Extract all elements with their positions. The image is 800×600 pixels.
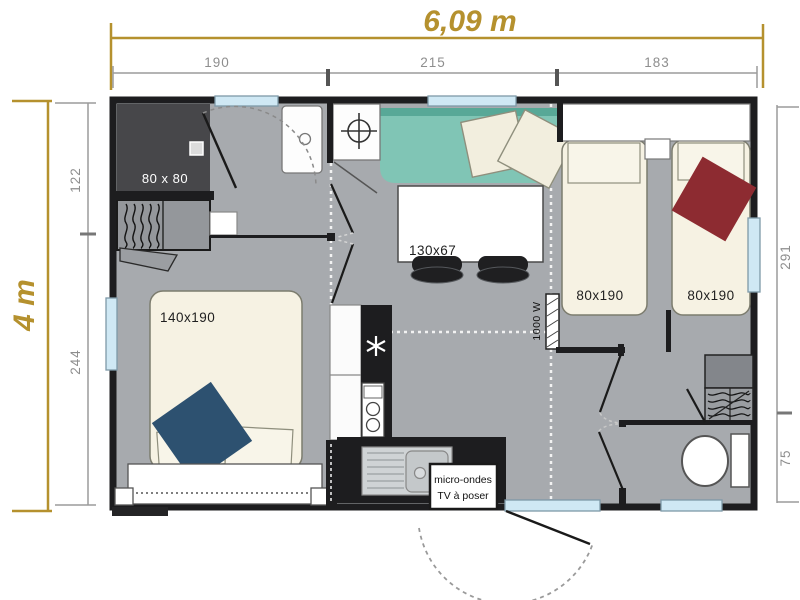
wc xyxy=(682,434,749,487)
bed-headboard xyxy=(128,464,322,504)
wall-twinroom-bottom xyxy=(556,347,625,353)
top-dim-183: 183 xyxy=(644,55,670,70)
total-height-label: 4 m xyxy=(8,279,41,332)
window-right xyxy=(748,218,760,292)
floorplan-page: 6,09 m 190 215 183 4 m 122 244 291 75 xyxy=(0,0,800,600)
shower-drain-icon xyxy=(190,142,203,155)
note-line-2: TV à poser xyxy=(437,490,489,502)
headboard-shelf xyxy=(562,104,750,141)
wall-hinge-post xyxy=(619,420,626,427)
dimension-top: 6,09 m 190 215 183 xyxy=(111,5,763,90)
hatched-wall xyxy=(326,440,337,506)
top-dim-215: 215 xyxy=(420,55,446,70)
sink-drain-icon xyxy=(415,468,426,479)
wall-between-beds xyxy=(666,310,671,352)
burner-icon-2 xyxy=(367,419,380,432)
wall-shower-bottom xyxy=(111,191,214,200)
window-left xyxy=(106,298,117,370)
right-dim-291: 291 xyxy=(778,244,793,270)
microwave-note: micro-ondes TV à poser xyxy=(430,464,497,509)
wall-wc-stub xyxy=(619,488,626,507)
cooktop-cabinet xyxy=(333,104,380,160)
wall-bathroom-right xyxy=(327,100,333,163)
entry-door-glass xyxy=(505,500,600,511)
chair-2-seat xyxy=(477,267,529,283)
pillow-left xyxy=(568,143,640,183)
floorplan-svg: 6,09 m 190 215 183 4 m 122 244 291 75 xyxy=(0,0,800,600)
sofa xyxy=(380,108,576,188)
top-dim-190: 190 xyxy=(204,55,230,70)
burner-icon-1 xyxy=(367,403,380,416)
note-line-1: micro-ondes xyxy=(434,474,492,486)
chair-1-seat xyxy=(411,267,463,283)
kitchen-cabinet xyxy=(330,305,361,440)
table-size-label: 130x67 xyxy=(409,243,456,258)
entry-step xyxy=(112,507,168,516)
single-bed-left-label: 80x190 xyxy=(576,288,623,303)
dimension-left: 4 m 122 244 xyxy=(8,100,96,512)
top-dim-tick-2 xyxy=(326,69,330,86)
left-dim-244: 244 xyxy=(68,349,83,375)
wall-bedroom-top xyxy=(210,235,331,238)
window-top-center xyxy=(428,96,516,106)
window-top-left xyxy=(215,96,278,106)
toilet-bowl xyxy=(682,436,728,486)
headboard-cap-left xyxy=(115,488,133,505)
nightstand-small xyxy=(210,212,237,235)
entry-door-arc xyxy=(419,528,593,600)
toilet-tank xyxy=(731,434,749,487)
dimension-right: 291 75 xyxy=(777,105,799,503)
washbasin xyxy=(282,106,322,173)
total-width-label: 6,09 m xyxy=(423,5,516,38)
shower-size-label: 80 x 80 xyxy=(142,171,188,186)
wall-post xyxy=(327,233,335,241)
wardrobe-right-shelf xyxy=(705,355,753,388)
wall-wc-top xyxy=(623,420,755,425)
top-dim-tick-3 xyxy=(555,69,559,86)
double-bed-size-label: 140x190 xyxy=(160,310,215,325)
single-bed-right-label: 80x190 xyxy=(687,288,734,303)
note-box xyxy=(430,464,497,509)
wall-sofa-right xyxy=(557,100,563,142)
heater-power-label: 1000 W xyxy=(531,301,543,340)
twin-nightstand xyxy=(645,139,670,159)
left-dim-122: 122 xyxy=(68,167,83,193)
window-bottom xyxy=(661,500,722,511)
wardrobe-right xyxy=(705,355,753,422)
entry-door-leaf xyxy=(506,511,590,544)
right-dim-75: 75 xyxy=(778,449,793,466)
